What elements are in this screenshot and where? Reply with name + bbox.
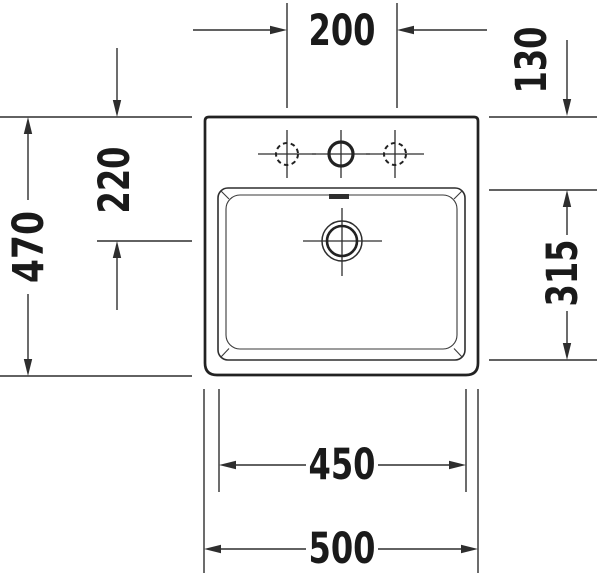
drain [303, 208, 382, 276]
washbasin-technical-drawing: 200 130 315 470 220 [0, 0, 600, 579]
dimension-top-edge-to-drain: 220 [90, 48, 192, 310]
tap-holes [258, 130, 424, 178]
arrow-right-icon [270, 26, 287, 34]
bowl-corner-tick-br [454, 349, 463, 358]
arrow-down-icon [563, 343, 571, 360]
arrow-down-icon [24, 359, 32, 376]
dimension-tap-hole-spacing: 200 [193, 3, 487, 108]
bowl-corner-tick-tl [221, 191, 230, 200]
arrow-up-icon [113, 241, 121, 258]
dim-label-bowl-width: 450 [309, 440, 376, 490]
tap-hole-left [258, 130, 316, 178]
bowl-corner-tick-bl [221, 349, 230, 358]
arrow-left-icon [219, 461, 236, 469]
washbasin-plan-drawing-svg: 200 130 315 470 220 [0, 0, 600, 579]
arrow-right-icon [461, 545, 478, 553]
dim-label-tap-hole-spacing: 200 [309, 6, 376, 56]
dim-label-overall-width: 500 [309, 524, 376, 574]
arrow-left-icon [397, 26, 414, 34]
dim-label-top-edge-to-drain: 220 [90, 147, 140, 214]
arrow-down-icon [563, 99, 571, 116]
overflow-mark [329, 194, 349, 199]
dim-label-top-edge-to-bowl: 130 [507, 27, 557, 94]
dimension-top-edge-to-bowl: 130 [507, 27, 571, 117]
tap-hole-right [366, 130, 424, 178]
arrow-down-icon [113, 100, 121, 117]
tap-hole-center [312, 130, 370, 178]
dimension-bowl-width: 450 [219, 389, 466, 492]
dim-label-overall-depth: 470 [4, 211, 54, 283]
dim-label-bowl-depth: 315 [538, 240, 588, 307]
arrow-left-icon [204, 545, 221, 553]
dimension-bowl-depth: 315 [489, 117, 597, 360]
arrow-up-icon [563, 190, 571, 207]
arrow-up-icon [24, 117, 32, 134]
arrow-right-icon [449, 461, 466, 469]
bowl-corner-tick-tr [454, 191, 463, 200]
